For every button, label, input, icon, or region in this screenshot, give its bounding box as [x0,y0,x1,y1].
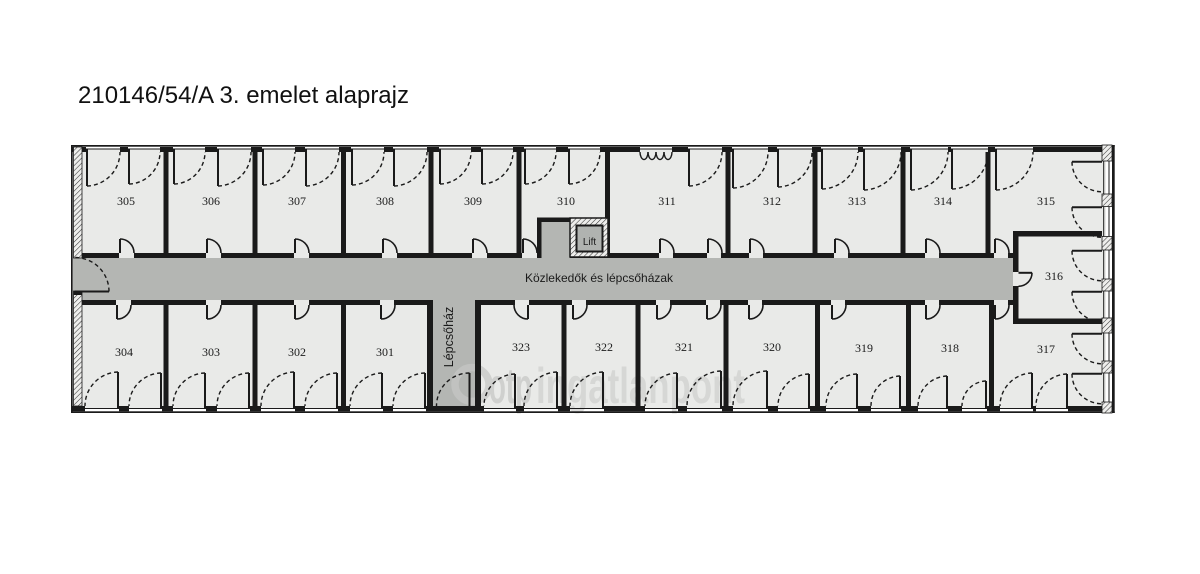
svg-text:309: 309 [464,194,482,208]
svg-text:313: 313 [848,194,866,208]
svg-text:318: 318 [941,341,959,355]
svg-text:312: 312 [763,194,781,208]
svg-text:308: 308 [376,194,394,208]
svg-text:ingatlanpont: ingatlanpont [536,358,745,414]
svg-text:316: 316 [1045,269,1063,283]
svg-text:210146/54/A 3. emelet alaprajz: 210146/54/A 3. emelet alaprajz [78,82,409,109]
svg-text:321: 321 [675,340,693,354]
svg-text:314: 314 [934,194,952,208]
svg-text:310: 310 [557,194,575,208]
svg-text:315: 315 [1037,194,1055,208]
svg-text:Közlekedők és lépcsőházak: Közlekedők és lépcsőházak [525,271,674,285]
svg-text:311: 311 [658,194,676,208]
svg-text:322: 322 [595,340,613,354]
svg-text:320: 320 [763,340,781,354]
svg-text:Lift: Lift [583,237,597,248]
svg-text:317: 317 [1037,342,1055,356]
svg-text:305: 305 [117,194,135,208]
svg-text:Lépcsőház: Lépcsőház [442,307,456,367]
svg-text:307: 307 [288,194,306,208]
svg-text:306: 306 [202,194,220,208]
svg-text:301: 301 [376,345,394,359]
svg-text:319: 319 [855,341,873,355]
svg-text:304: 304 [115,345,133,359]
svg-text:otp: otp [489,358,532,414]
svg-text:303: 303 [202,345,220,359]
svg-text:302: 302 [288,345,306,359]
svg-text:323: 323 [512,340,530,354]
